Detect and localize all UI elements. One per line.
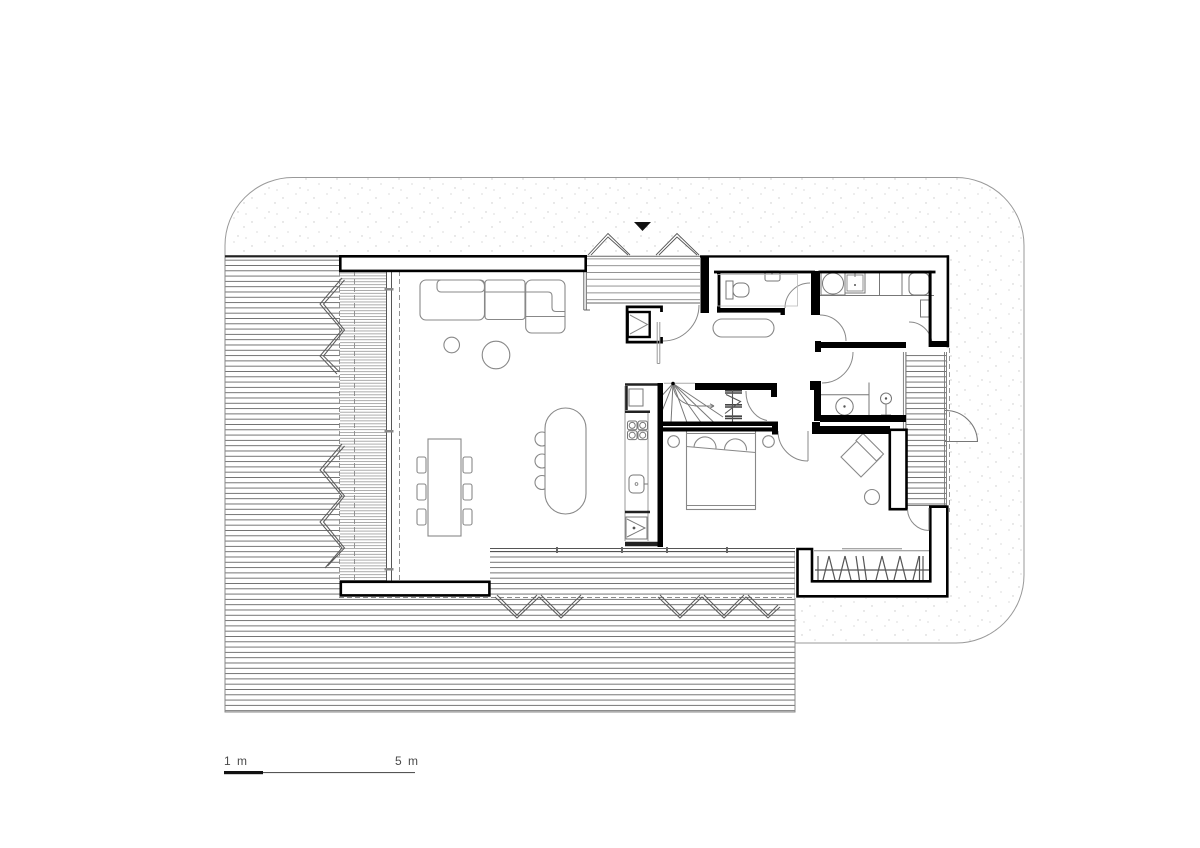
svg-text:5 m: 5 m [395,754,420,768]
svg-text:1 m: 1 m [224,754,249,768]
